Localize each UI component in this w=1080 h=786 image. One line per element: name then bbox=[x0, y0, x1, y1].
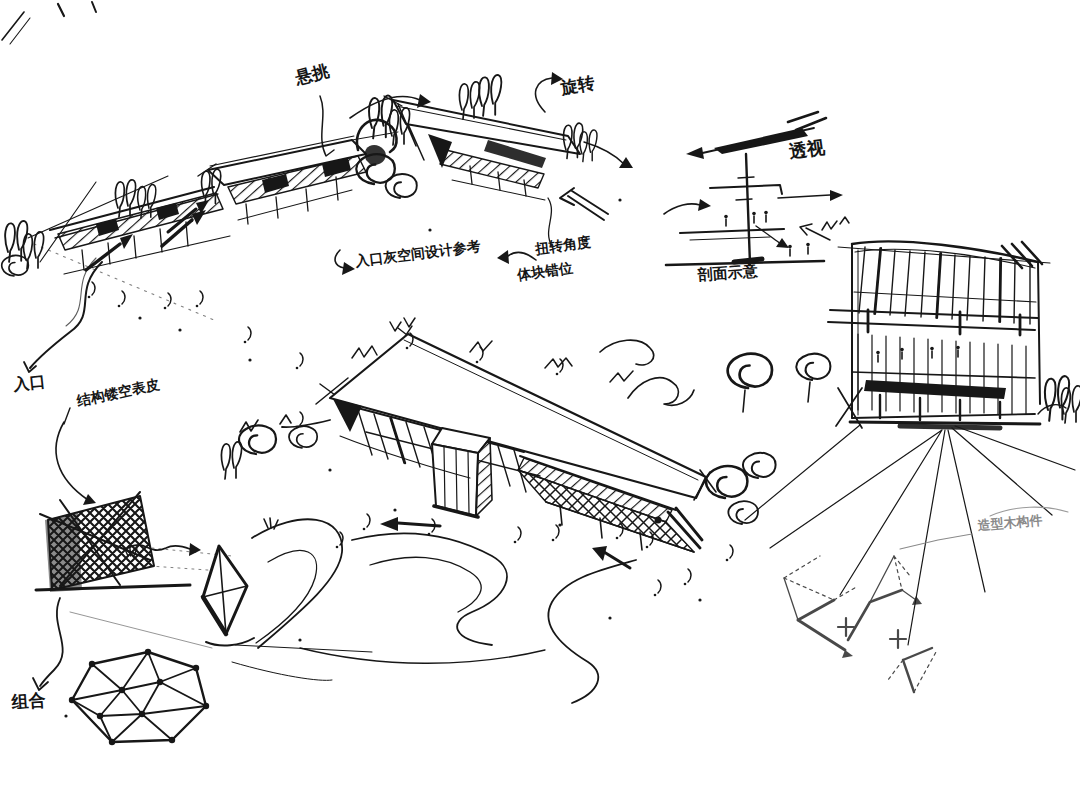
annotation-block-offset: 体块错位 bbox=[515, 259, 574, 283]
annotation-entrance: 入口 bbox=[11, 372, 46, 394]
annotation-rotation: 旋转 bbox=[558, 72, 596, 98]
arrow-icon bbox=[806, 228, 830, 240]
building-bar-left bbox=[28, 176, 230, 320]
arrow-icon bbox=[508, 253, 536, 260]
annotation-cantilever: 悬挑 bbox=[292, 60, 332, 88]
arrow-icon bbox=[778, 195, 830, 198]
node-joint-details bbox=[784, 556, 936, 692]
bold-arrow-icon bbox=[86, 244, 120, 270]
annotation-facade-note: 结构镂空表皮 bbox=[74, 376, 160, 409]
section-diagram bbox=[664, 112, 843, 265]
polyhedron-module bbox=[64, 649, 209, 745]
bold-arrow-icon bbox=[398, 523, 440, 526]
entrance-arrow bbox=[30, 262, 102, 368]
margin-marks bbox=[2, 2, 96, 44]
building-bar-center bbox=[162, 120, 398, 246]
sketch-page: 悬挑 旋转 透视 剖面示意 入口 入口灰空间设计参考 扭转角度 体块错位 结构镂… bbox=[0, 0, 1080, 786]
annotation-section: 剖面示意 bbox=[696, 262, 759, 284]
kite-module bbox=[203, 546, 254, 645]
facade-note-arrow bbox=[56, 422, 88, 500]
annotation-perspective: 透视 bbox=[788, 136, 827, 162]
annotation-entrance-note: 入口灰空间设计参考 bbox=[353, 238, 481, 269]
annotation-combination: 组合 bbox=[10, 690, 46, 712]
building-bar-right bbox=[384, 96, 633, 246]
arrow-icon bbox=[335, 250, 344, 268]
arrow-icon bbox=[536, 78, 552, 112]
architecture-sketch: 悬挑 旋转 透视 剖面示意 入口 入口灰空间设计参考 扭转角度 体块错位 结构镂… bbox=[0, 0, 1080, 786]
annotation-twist-angle: 扭转角度 bbox=[533, 233, 592, 257]
arrow-icon bbox=[584, 142, 624, 164]
arrow-icon bbox=[40, 598, 63, 686]
building-pavilion bbox=[745, 241, 1075, 645]
annotation-timber-note: 造型木构件 bbox=[976, 512, 1043, 533]
arrow-icon bbox=[664, 204, 700, 214]
